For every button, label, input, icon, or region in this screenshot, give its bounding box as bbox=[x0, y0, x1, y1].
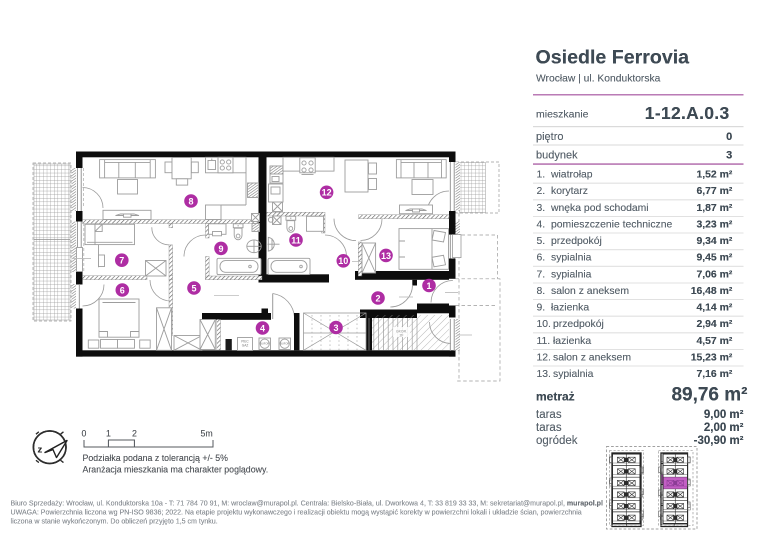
svg-text:5.: 5. bbox=[537, 236, 546, 247]
svg-text:9,00 m²: 9,00 m² bbox=[704, 409, 744, 421]
svg-text:korytarz: korytarz bbox=[551, 186, 588, 197]
svg-text:7,16 m²: 7,16 m² bbox=[696, 369, 732, 380]
svg-text:15,23 m²: 15,23 m² bbox=[691, 352, 733, 363]
svg-text:mieszkanie: mieszkanie bbox=[536, 109, 589, 121]
svg-text:GAZ: GAZ bbox=[242, 344, 249, 348]
svg-text:ogródek: ogródek bbox=[536, 435, 578, 447]
svg-text:12.: 12. bbox=[537, 352, 551, 363]
svg-text:2: 2 bbox=[375, 293, 380, 303]
svg-text:11: 11 bbox=[291, 235, 301, 245]
svg-text:piętro: piętro bbox=[536, 131, 564, 143]
svg-text:Biuro Sprzedaży: Wrocław, ul.: Biuro Sprzedaży: Wrocław, ul. Konduktors… bbox=[11, 501, 603, 508]
svg-text:1: 1 bbox=[106, 429, 111, 439]
svg-text:budynek: budynek bbox=[536, 150, 578, 162]
svg-text:wnęka pod schodami: wnęka pod schodami bbox=[550, 203, 649, 214]
svg-text:łazienka: łazienka bbox=[551, 303, 589, 314]
svg-text:sypialnia: sypialnia bbox=[553, 369, 594, 380]
svg-text:sypialnia: sypialnia bbox=[551, 253, 592, 264]
svg-text:pomieszczenie techniczne: pomieszczenie techniczne bbox=[551, 219, 673, 230]
svg-text:3: 3 bbox=[333, 323, 338, 333]
svg-text:przedpokój: przedpokój bbox=[553, 319, 604, 330]
svg-text:przedpokój: przedpokój bbox=[551, 236, 602, 247]
svg-text:13: 13 bbox=[381, 251, 391, 261]
svg-text:Podziałka podana z tolerancją: Podziałka podana z tolerancją +/- 5% bbox=[83, 453, 229, 463]
svg-text:Wrocław | ul. Konduktorska: Wrocław | ul. Konduktorska bbox=[536, 74, 661, 85]
svg-text:UWAGA: Powierzchnia liczona wg: UWAGA: Powierzchnia liczona wg PN-ISO 98… bbox=[11, 510, 582, 517]
svg-text:13.: 13. bbox=[537, 369, 551, 380]
svg-text:2.: 2. bbox=[537, 186, 546, 197]
svg-text:7,06 m²: 7,06 m² bbox=[696, 269, 732, 280]
svg-text:2F: 2F bbox=[400, 334, 404, 338]
svg-text:0: 0 bbox=[726, 131, 732, 143]
svg-text:6.: 6. bbox=[537, 253, 546, 264]
svg-text:16,48 m²: 16,48 m² bbox=[691, 286, 733, 297]
svg-text:3.: 3. bbox=[537, 203, 546, 214]
svg-text:salon z aneksem: salon z aneksem bbox=[553, 352, 631, 363]
svg-text:1: 1 bbox=[426, 281, 431, 291]
svg-text:-30,90 m²: -30,90 m² bbox=[694, 435, 744, 447]
svg-text:9,34 m²: 9,34 m² bbox=[696, 236, 732, 247]
svg-text:2: 2 bbox=[132, 429, 137, 439]
svg-text:1,87 m²: 1,87 m² bbox=[696, 203, 732, 214]
svg-text:5: 5 bbox=[191, 283, 196, 293]
svg-text:Aranżacja mieszkania ma charak: Aranżacja mieszkania ma charakter pogląd… bbox=[83, 465, 269, 475]
svg-text:4,14 m²: 4,14 m² bbox=[696, 303, 732, 314]
svg-text:z: z bbox=[38, 445, 43, 456]
svg-text:4,57 m²: 4,57 m² bbox=[696, 336, 732, 347]
svg-text:1.: 1. bbox=[537, 170, 546, 181]
svg-text:Osiedle Ferrovia: Osiedle Ferrovia bbox=[536, 47, 691, 69]
svg-text:metraż: metraż bbox=[536, 390, 575, 404]
svg-text:10.: 10. bbox=[537, 319, 551, 330]
svg-text:sypialnia: sypialnia bbox=[551, 269, 592, 280]
svg-text:9.: 9. bbox=[537, 303, 546, 314]
svg-text:8: 8 bbox=[188, 196, 193, 206]
svg-text:0: 0 bbox=[82, 429, 87, 439]
svg-text:3: 3 bbox=[726, 150, 732, 162]
svg-text:liczona w stanie wykończonym.: liczona w stanie wykończonym. Do oblicze… bbox=[11, 519, 218, 526]
svg-text:salon z aneksem: salon z aneksem bbox=[551, 286, 629, 297]
svg-text:89,76 m²: 89,76 m² bbox=[671, 385, 747, 406]
svg-text:9,45 m²: 9,45 m² bbox=[696, 253, 732, 264]
svg-text:10: 10 bbox=[338, 256, 348, 266]
svg-text:4: 4 bbox=[260, 323, 265, 333]
svg-text:6,77 m²: 6,77 m² bbox=[696, 186, 732, 197]
svg-text:2,00 m²: 2,00 m² bbox=[704, 422, 744, 434]
svg-text:1,52 m²: 1,52 m² bbox=[696, 170, 732, 181]
svg-text:5m: 5m bbox=[201, 429, 213, 439]
svg-text:11.: 11. bbox=[537, 336, 551, 347]
svg-text:8.: 8. bbox=[537, 286, 546, 297]
svg-text:7.: 7. bbox=[537, 269, 546, 280]
svg-text:taras: taras bbox=[536, 422, 562, 434]
svg-text:9: 9 bbox=[218, 244, 223, 254]
svg-text:taras: taras bbox=[536, 409, 562, 421]
svg-text:wiatrołap: wiatrołap bbox=[550, 170, 593, 181]
svg-text:BUFOR: BUFOR bbox=[280, 342, 289, 346]
svg-text:4.: 4. bbox=[537, 219, 546, 230]
svg-text:łazienka: łazienka bbox=[553, 336, 591, 347]
svg-text:7: 7 bbox=[119, 256, 124, 266]
svg-text:6: 6 bbox=[120, 285, 125, 295]
svg-text:1-12.A.0.3: 1-12.A.0.3 bbox=[645, 103, 730, 123]
svg-text:3,23 m²: 3,23 m² bbox=[696, 219, 732, 230]
svg-text:2,94 m²: 2,94 m² bbox=[696, 319, 732, 330]
svg-text:12: 12 bbox=[322, 188, 332, 198]
svg-text:BUFOR: BUFOR bbox=[260, 342, 269, 346]
